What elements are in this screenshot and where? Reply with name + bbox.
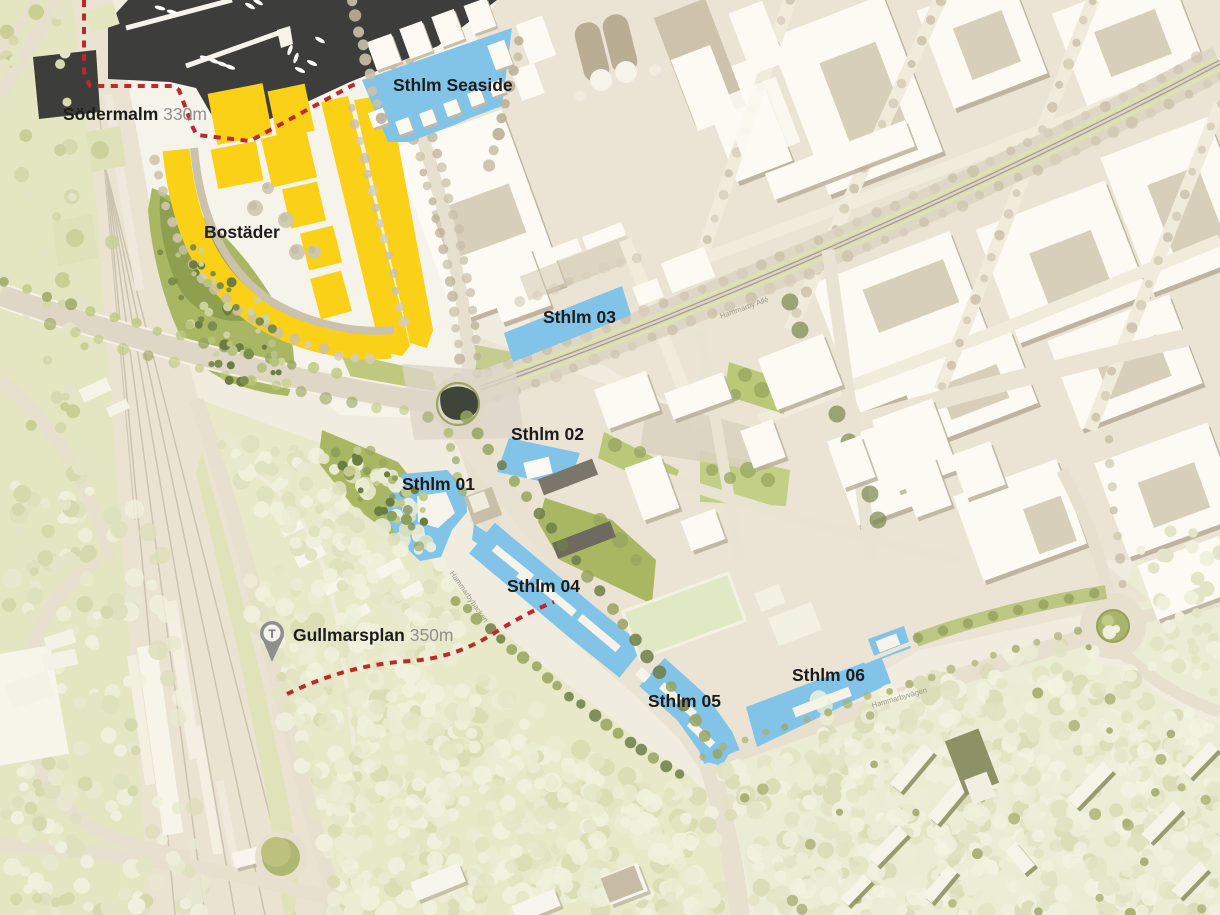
svg-text:Sthlm Seaside: Sthlm Seaside: [393, 75, 513, 95]
svg-text:Sthlm 05: Sthlm 05: [648, 691, 721, 711]
svg-text:Sthlm 02: Sthlm 02: [511, 424, 584, 444]
svg-text:Bostäder: Bostäder: [204, 222, 280, 242]
svg-text:Gullmarsplan 350m: Gullmarsplan 350m: [293, 625, 453, 645]
svg-text:Sthlm 06: Sthlm 06: [792, 665, 865, 685]
svg-text:Södermalm 330m: Södermalm 330m: [63, 104, 207, 124]
svg-text:Sthlm 03: Sthlm 03: [543, 307, 616, 327]
svg-text:Sthlm 01: Sthlm 01: [402, 474, 475, 494]
svg-text:T: T: [268, 627, 276, 641]
svg-text:Sthlm 04: Sthlm 04: [507, 576, 580, 596]
